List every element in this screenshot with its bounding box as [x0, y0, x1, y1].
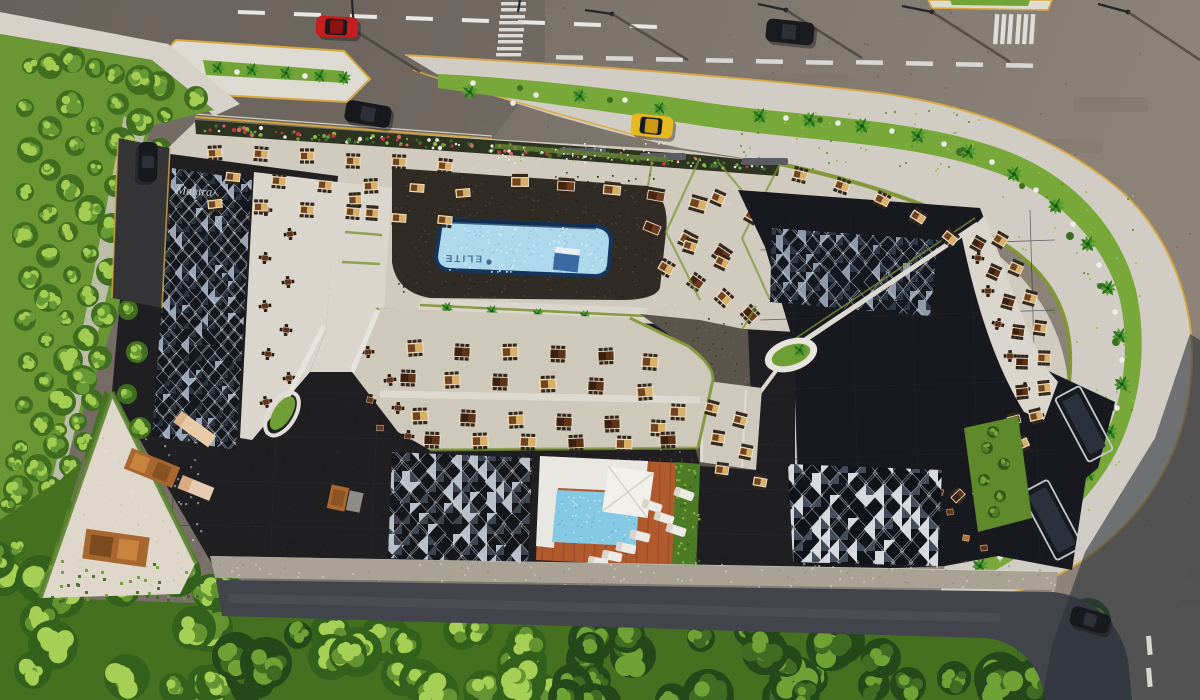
svg-text:ELITE: ELITE — [444, 252, 483, 264]
svg-text:Mantra: Mantra — [175, 183, 213, 199]
